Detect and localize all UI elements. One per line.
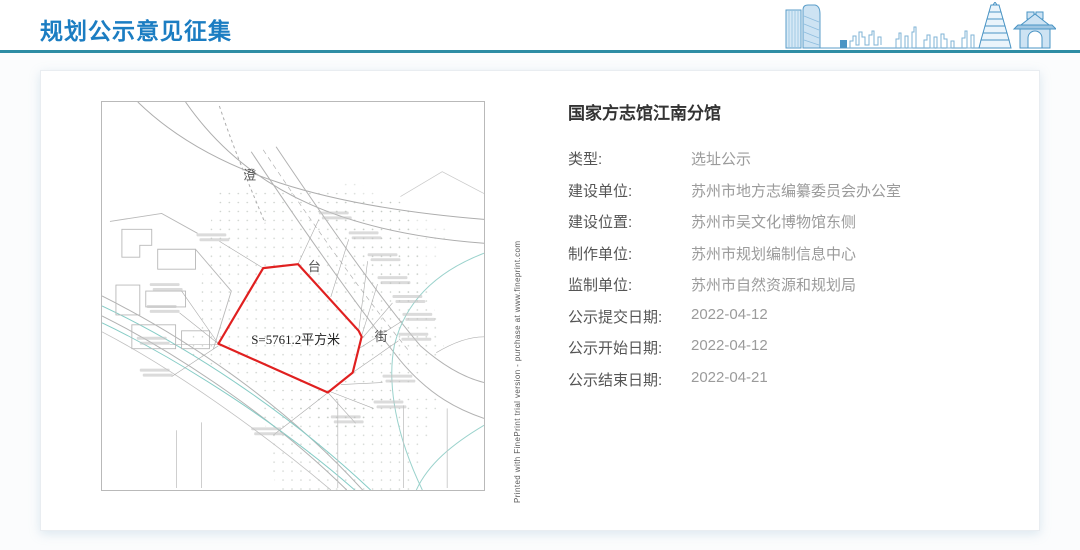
detail-value: 苏州市吴文化博物馆东侧: [691, 211, 856, 232]
detail-value: 2022-04-12: [691, 337, 768, 354]
detail-value: 苏州市地方志编纂委员会办公室: [691, 180, 901, 201]
content-card: S=5761.2平方米 澄 台 街 Printed with FinePrint…: [40, 70, 1040, 531]
suzhou-skyline-icon: [784, 2, 1056, 50]
detail-row-start-date: 公示开始日期: 2022-04-12: [568, 337, 1018, 369]
detail-value: 苏州市规划编制信息中心: [691, 243, 856, 264]
detail-value: 2022-04-21: [691, 369, 768, 386]
detail-row-supervisor: 监制单位: 苏州市自然资源和规划局: [568, 274, 1018, 306]
site-plan-map[interactable]: S=5761.2平方米 澄 台 街: [101, 101, 485, 491]
detail-label: 建设单位:: [568, 180, 691, 201]
project-title: 国家方志馆江南分馆: [568, 99, 1018, 124]
detail-value: 2022-04-12: [691, 306, 768, 323]
detail-row-submit-date: 公示提交日期: 2022-04-12: [568, 306, 1018, 338]
site-area-label: S=5761.2平方米: [251, 332, 340, 347]
detail-label: 建设位置:: [568, 211, 691, 232]
detail-row-location: 建设位置: 苏州市吴文化博物馆东侧: [568, 211, 1018, 243]
street-char-jie: 街: [375, 329, 388, 344]
detail-label: 公示提交日期:: [568, 306, 691, 327]
fineprint-watermark: Printed with FinePrint trial version - p…: [513, 229, 522, 503]
detail-value: 选址公示: [691, 148, 751, 169]
detail-row-end-date: 公示结束日期: 2022-04-21: [568, 369, 1018, 401]
detail-label: 公示开始日期:: [568, 337, 691, 358]
detail-label: 公示结束日期:: [568, 369, 691, 390]
page-header: 规划公示意见征集: [0, 0, 1080, 53]
dot-texture: [261, 395, 440, 490]
detail-value: 苏州市自然资源和规划局: [691, 274, 856, 295]
street-char-cheng: 澄: [243, 168, 256, 183]
project-details: 国家方志馆江南分馆 类型: 选址公示 建设单位: 苏州市地方志编纂委员会办公室 …: [568, 99, 1018, 400]
detail-row-type: 类型: 选址公示: [568, 148, 1018, 180]
detail-label: 监制单位:: [568, 274, 691, 295]
page-title: 规划公示意见征集: [40, 12, 232, 46]
detail-row-producer: 制作单位: 苏州市规划编制信息中心: [568, 243, 1018, 275]
detail-row-construction-unit: 建设单位: 苏州市地方志编纂委员会办公室: [568, 180, 1018, 212]
detail-label: 类型:: [568, 148, 691, 169]
street-char-tai: 台: [308, 259, 321, 274]
detail-label: 制作单位:: [568, 243, 691, 264]
